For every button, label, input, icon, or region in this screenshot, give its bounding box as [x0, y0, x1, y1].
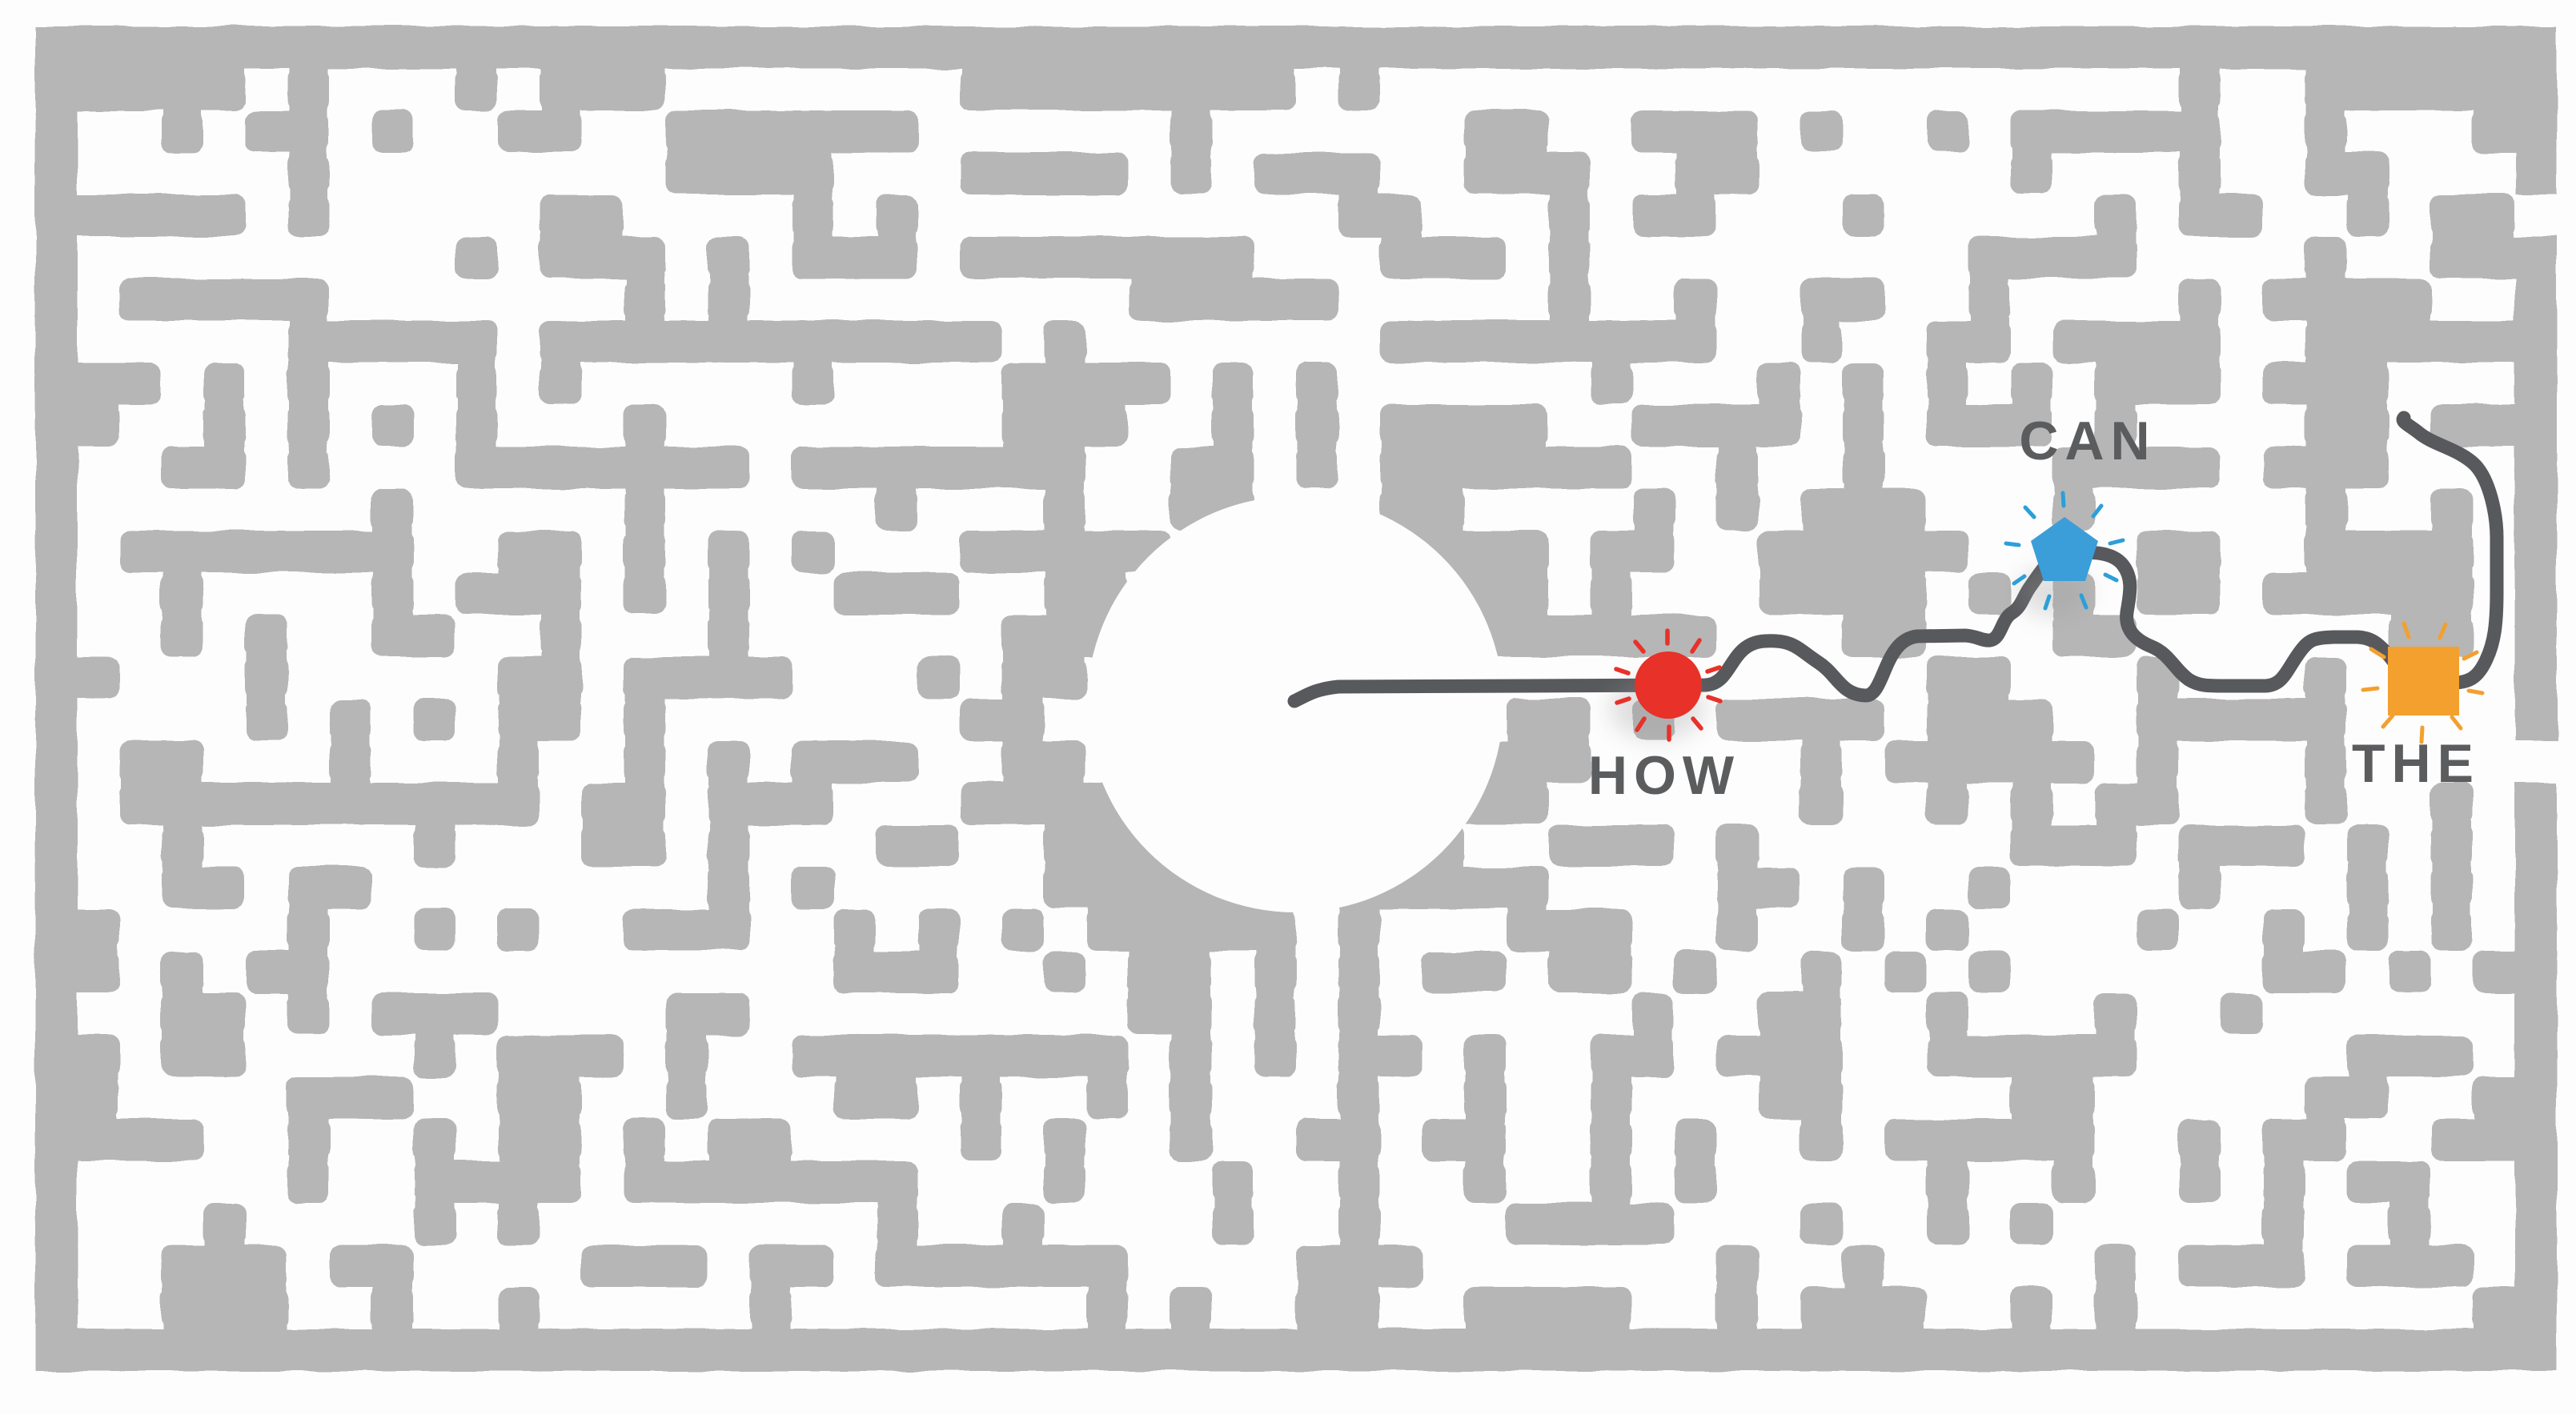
- svg-text:THE: THE: [2352, 733, 2480, 794]
- svg-text:HOW: HOW: [1588, 745, 1740, 806]
- svg-text:CAN: CAN: [2019, 411, 2156, 471]
